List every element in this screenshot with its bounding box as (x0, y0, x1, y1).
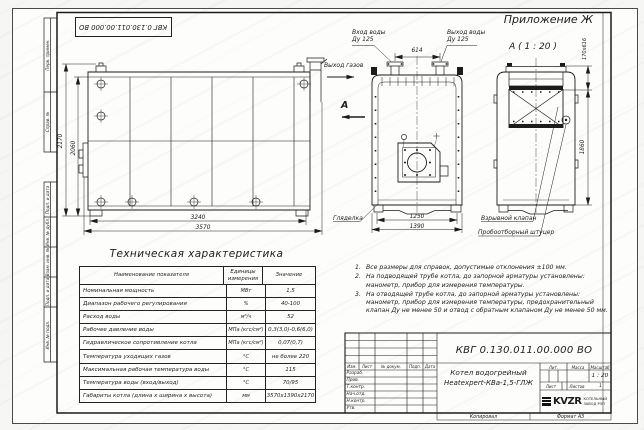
spec-cell-name: Номинальная мощность (80, 285, 227, 297)
note-text: Все размеры для справок, допустимые откл… (366, 264, 612, 272)
water-outlet-line1: Выход воды (447, 29, 485, 36)
spec-col-name: Наименование показателя (80, 267, 224, 284)
spec-table: Наименование показателя Единицы измерени… (79, 266, 316, 403)
spec-cell-value: 3570х1390х2170 (266, 390, 315, 402)
spec-rows: Номинальная мощность МВт 1,5 Диапазон ра… (80, 284, 315, 402)
spec-cell-unit: МВт (227, 285, 266, 297)
screenshot-root: КВГ 0.130.011.00.000 ВО Приложение Ж А (… (0, 0, 644, 430)
logo-subtitle: КОТЕЛЬНЫЙ ЗАВОД РЭП (583, 397, 607, 405)
water-inlet-line1: Вход воды (352, 29, 386, 36)
note-item: 3. На отводящей трубе котла, до запорной… (355, 291, 612, 316)
company-logo: KVZR КОТЕЛЬНЫЙ ЗАВОД РЭП (542, 392, 610, 411)
logo-sub-line2: ЗАВОД РЭП (583, 402, 607, 406)
spec-cell-name: Максимальная рабочая температура воды (80, 364, 227, 376)
spec-cell-name: Температура воды (вход/выход) (80, 377, 227, 389)
water-outlet-line2: Ду 125 (447, 36, 485, 43)
spec-cell-unit: °С (227, 364, 266, 376)
spec-cell-name: Температура уходящих газов (80, 350, 227, 362)
product-name: Котел водогрейный Heatexpert-КВа-1,5-ГЛЖ (437, 368, 540, 388)
doc-number: КВГ 0.130.011.00.000 ВО (437, 338, 611, 363)
water-outlet-label: Выход воды Ду 125 (447, 29, 485, 43)
top-stamp-text: КВГ 0.130.011.00.000 ВО (79, 23, 167, 31)
dim-valve-opening: 170х616 (581, 31, 589, 67)
tb-sig-prov: Пров. (347, 377, 375, 384)
spec-cell-value: 40-100 (266, 298, 315, 310)
top-stamp-box: КВГ 0.130.011.00.000 ВО (75, 17, 172, 37)
spec-col-unit: Единицы измерения (224, 267, 263, 284)
dim-total-length: 3570 (183, 224, 223, 232)
sheets-value: 1 (592, 383, 609, 390)
spec-cell-unit: мм (227, 390, 266, 402)
spec-cell-unit: м³/ч (227, 311, 266, 323)
note-number: 1. (355, 264, 366, 272)
margin-field-inv-podl: Инв. № подл. (44, 308, 52, 362)
view-a-title: А ( 1 : 20 ) (493, 42, 573, 52)
spec-row: Расход воды м³/ч 52 (80, 310, 315, 323)
spec-cell-name: Габариты котла (длина х ширина х высота) (80, 390, 227, 402)
logo-sub-line1: КОТЕЛЬНЫЙ (583, 397, 607, 401)
spec-cell-unit: МПа (кгс/см²) (227, 337, 266, 349)
tb-col-list: Лист (359, 363, 375, 370)
spec-cell-name: Гидравлическое сопротивление котла (80, 337, 227, 349)
product-name-line2: Heatexpert-КВа-1,5-ГЛЖ (437, 378, 540, 388)
spec-cell-unit: МПа (кгс/см²) (227, 324, 266, 336)
sight-glass-label: Гляделка (333, 215, 363, 222)
sampling-fitting-label: Пробоотборный штуцер (478, 229, 554, 236)
margin-field-podp-data-1: Подп. и дата (44, 183, 52, 217)
sheet-label: Лист (540, 383, 562, 390)
margin-field-podp-data-2: Подп. и дата (44, 277, 52, 307)
gas-outlet-label: Выход газов (324, 62, 363, 69)
water-inlet-line2: Ду 125 (352, 36, 386, 43)
scale-value: 1 : 20 (589, 373, 611, 380)
spec-cell-value: не более 220 (266, 350, 315, 362)
spec-row: Температура уходящих газов °С не более 2… (80, 349, 315, 362)
tb-col-podp: Подп. (407, 363, 423, 370)
spec-cell-unit: % (227, 298, 266, 310)
spec-cell-name: Диапазон рабочего регулирования (80, 298, 227, 310)
spec-title: Техническая характеристика (79, 248, 314, 260)
spec-cell-value: 115 (266, 364, 315, 376)
tb-sig-nkontr: Н.контр. (347, 398, 375, 405)
spec-row: Максимальная рабочая температура воды °С… (80, 363, 315, 376)
view-direction-label: А (341, 102, 348, 109)
spec-cell-unit: °С (227, 350, 266, 362)
note-number: 2. (355, 273, 366, 290)
spec-row: Гидравлическое сопротивление котла МПа (… (80, 336, 315, 349)
spec-row: Диапазон рабочего регулирования % 40-100 (80, 297, 315, 310)
appendix-label: Приложение Ж (480, 13, 593, 26)
tb-sig-razrab: Разраб. (347, 370, 375, 377)
tb-col-izm: Изм. (345, 363, 359, 370)
margin-field-sprav: Справ. № (44, 94, 52, 150)
margin-field-vzam-inv: Взам. инв. № (44, 247, 52, 277)
spec-row: Температура воды (вход/выход) °С 70/95 (80, 376, 315, 389)
note-item: 2. На подводящей трубе котла, до запорно… (355, 273, 612, 290)
spec-cell-value: 52 (266, 311, 315, 323)
format-label: Формат А3 (530, 414, 611, 421)
kopiroval-label: Копировал (437, 414, 530, 421)
explosion-valve-label: Взрывной клапан (481, 215, 536, 222)
dim-rear-height: 1860 (579, 132, 587, 162)
mass-label: Масса (567, 364, 589, 371)
water-inlet-label: Вход воды Ду 125 (352, 29, 386, 43)
spec-cell-value: 0,07(0,7) (266, 337, 315, 349)
margin-field-inv-dubl: Инв. № дубл. (44, 217, 52, 247)
lit-label: Лит. (540, 364, 567, 371)
note-text: На отводящей трубе котла, до запорной ар… (366, 291, 612, 316)
spec-row: Номинальная мощность МВт 1,5 (80, 284, 315, 297)
tb-col-dokum: № докум. (375, 363, 407, 370)
sheets-label: Листов (562, 383, 592, 390)
scale-label: Масштаб (589, 364, 611, 371)
note-text: На подводящей трубе котла, до запорной а… (366, 273, 612, 290)
spec-row: Габариты котла (длина х ширина х высота)… (80, 389, 315, 402)
logo-text: KVZR (553, 396, 581, 407)
spec-col-value: Значение (263, 267, 315, 284)
note-item: 1. Все размеры для справок, допустимые о… (355, 264, 612, 272)
tb-sig-tkontr: Т.контр. (347, 384, 375, 391)
dim-total-height: 2170 (57, 126, 65, 156)
product-name-line1: Котел водогрейный (437, 368, 540, 378)
spec-cell-name: Расход воды (80, 311, 227, 323)
spec-header-row: Наименование показателя Единицы измерени… (80, 267, 315, 284)
dim-total-width: 1390 (397, 223, 437, 231)
dim-nozzle-spacing: 614 (400, 47, 434, 55)
tb-col-data: Дата (423, 363, 437, 370)
spec-cell-name: Рабочее давление воды (80, 324, 227, 336)
margin-field-perv-primen: Перв. примен. (44, 20, 52, 90)
tb-header-row: Изм. Лист № докум. Подп. Дата (345, 363, 437, 370)
spec-cell-unit: °С (227, 377, 266, 389)
spec-row: Рабочее давление воды МПа (кгс/см²) 0,3(… (80, 323, 315, 336)
dim-body-width: 1250 (397, 213, 437, 221)
tb-sig-nachotd: Нач.отд. (347, 391, 375, 398)
dim-body-height: 2060 (70, 133, 78, 163)
notes-list: 1. Все размеры для справок, допустимые о… (355, 264, 612, 317)
tb-sig-utv: Утв. (347, 405, 375, 412)
note-number: 3. (355, 291, 366, 316)
spec-cell-value: 1,5 (266, 285, 315, 297)
spec-cell-value: 0,3(3,0)-0,6(6,0) (266, 324, 315, 336)
spec-cell-value: 70/95 (266, 377, 315, 389)
dim-body-length: 3240 (178, 214, 218, 222)
logo-stripes-icon (542, 397, 551, 406)
